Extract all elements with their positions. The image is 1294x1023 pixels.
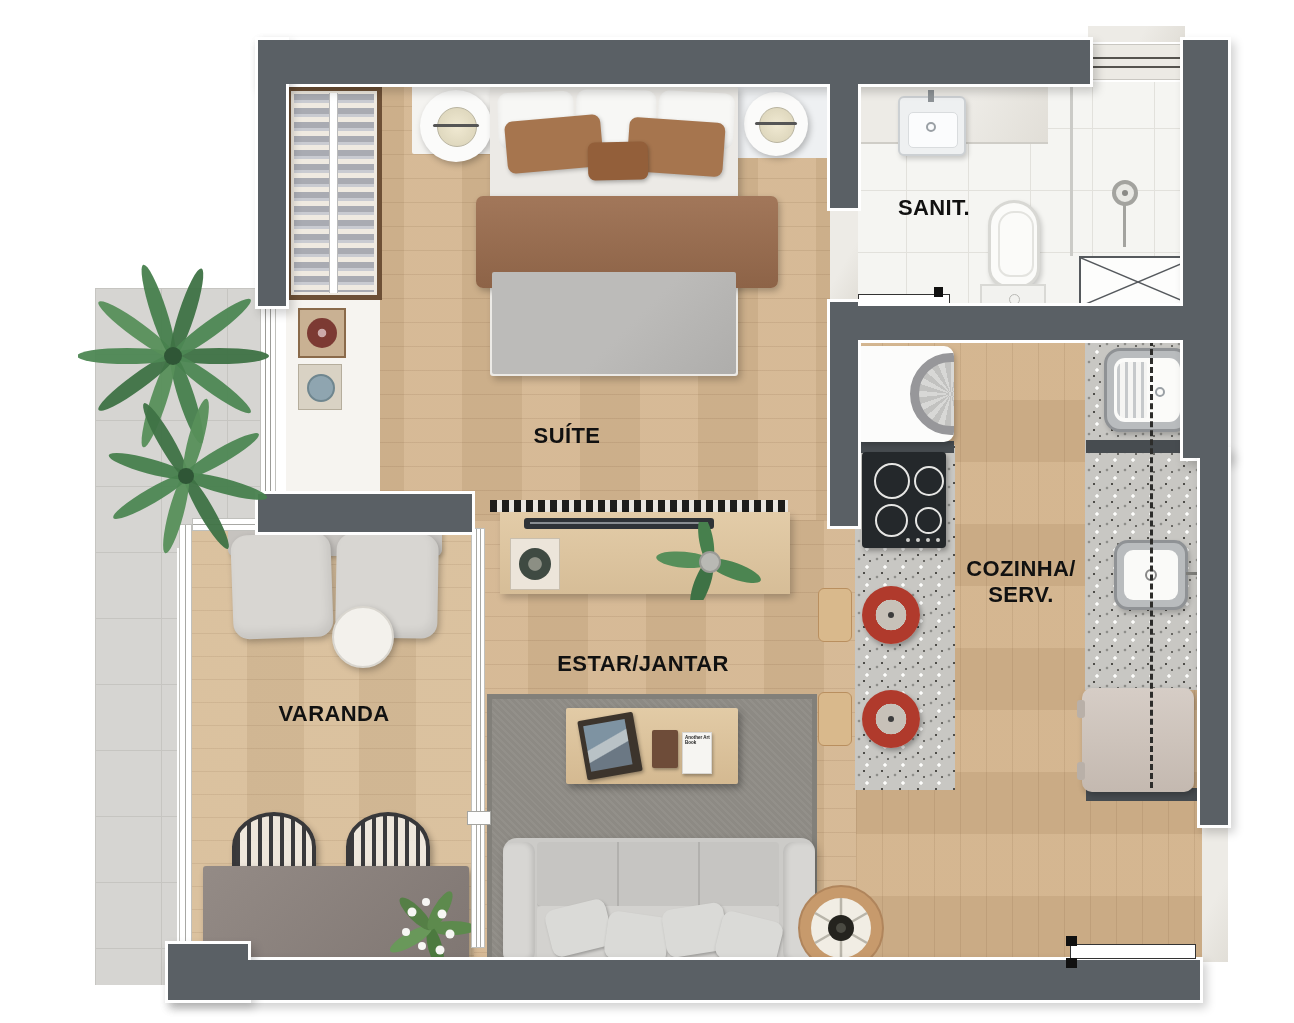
- wall-top: [258, 40, 1090, 84]
- room-label-suite: SUÍTE: [534, 423, 601, 449]
- bathroom-sink: [898, 96, 966, 156]
- glass-line: [480, 529, 481, 947]
- toilet-bowl: [988, 200, 1040, 288]
- wall-right-upper: [1183, 40, 1228, 458]
- wall-right-lower: [1200, 450, 1228, 825]
- room-label-cozinha-line2: SERV.: [966, 582, 1076, 608]
- lamp-left-icon: [420, 90, 492, 162]
- burner-icon: [915, 507, 942, 534]
- floor-plan: Another Art Book: [0, 0, 1294, 1023]
- room-label-estar: ESTAR/JANTAR: [557, 651, 728, 677]
- balcony-side-table: [332, 606, 394, 668]
- fridge-hinge: [1077, 762, 1085, 780]
- pot-icon: [862, 690, 920, 748]
- entrance-door-hinge: [1066, 958, 1077, 968]
- duct-x-icon: [1081, 258, 1195, 306]
- bathroom-door-hinge: [934, 287, 943, 297]
- counter-stool: [818, 692, 852, 746]
- cooktop-knob: [906, 538, 910, 542]
- glass-line: [185, 525, 186, 947]
- pot-icon: [862, 586, 920, 644]
- room-label-cozinha: COZINHA/ SERV.: [966, 556, 1076, 608]
- washer: [858, 346, 954, 442]
- art-book: Another Art Book: [682, 732, 712, 774]
- wall-suite-balcony: [258, 494, 472, 532]
- lamp-right-shade: [759, 107, 795, 143]
- decor-plate-icon: [307, 318, 337, 348]
- pot-lid-knob: [888, 612, 894, 618]
- room-label-varanda: VARANDA: [278, 701, 389, 727]
- room-label-cozinha-line1: COZINHA/: [966, 556, 1076, 582]
- shower-stem: [1123, 205, 1126, 247]
- dresser-decor-tile: [298, 364, 342, 410]
- sofa-seam: [617, 842, 619, 906]
- decor-speaker-icon: [519, 548, 551, 580]
- pot-lid-knob: [888, 716, 894, 722]
- entrance-door: [1070, 944, 1196, 959]
- lamp-left-shade: [437, 107, 477, 147]
- washer-drum-icon: [910, 353, 954, 435]
- entrance-door-hinge: [1066, 936, 1077, 946]
- sink-drain-icon: [926, 122, 936, 132]
- overhead-cabinet-dashed-line: [1150, 340, 1153, 788]
- bathroom-window: [1090, 44, 1184, 80]
- window-line: [1091, 57, 1183, 59]
- brown-book-icon: [652, 730, 678, 768]
- wall-bath-kitchen: [845, 306, 1200, 340]
- burner-icon: [874, 463, 910, 499]
- tv-panel-hatch: [490, 500, 788, 512]
- burner-icon: [914, 466, 944, 496]
- exterior-window-ledge: [1088, 26, 1185, 42]
- lamp-right-slit: [755, 122, 797, 125]
- counter-stool: [818, 588, 852, 642]
- sink-faucet-icon: [928, 90, 934, 102]
- magazine-icon: [583, 719, 632, 772]
- sofa-back: [537, 842, 779, 907]
- laundry-tank-sink: [1104, 348, 1190, 432]
- coffee-table-tray: [577, 712, 643, 781]
- balcony-sliding-door: [471, 528, 485, 948]
- decor-bowl-icon: [307, 374, 335, 402]
- palm-plant-icon: [78, 258, 273, 558]
- bathroom-door-threshold: [830, 208, 858, 304]
- dresser-decor-frame: [298, 308, 346, 358]
- cooktop-knob: [926, 538, 930, 542]
- bed-accent-pillow-small: [588, 141, 649, 180]
- wall-suite-bath: [830, 84, 858, 208]
- sliding-door-handle: [467, 811, 491, 825]
- wardrobe: [286, 86, 382, 300]
- wall-bottom: [168, 960, 1200, 1000]
- sofa-armrest: [503, 842, 535, 962]
- wardrobe-rail: [329, 93, 338, 293]
- balcony-railing-glass: [179, 524, 192, 948]
- sink-drain-icon: [1155, 387, 1165, 397]
- toilet-seat: [998, 211, 1034, 277]
- shower-head-center: [1122, 190, 1128, 196]
- shower-head-icon: [1112, 180, 1138, 206]
- cooktop: [862, 452, 946, 548]
- window-line: [1091, 66, 1183, 68]
- bed-duvet: [492, 272, 736, 374]
- fridge-hinge: [1077, 700, 1085, 718]
- console-decor-tray: [510, 538, 560, 590]
- shower-glass-divider: [1070, 84, 1073, 256]
- glass-line: [476, 529, 477, 947]
- washboard-icon: [1117, 362, 1147, 418]
- sofa: [503, 838, 815, 966]
- fridge: [1082, 688, 1194, 792]
- burner-icon: [875, 504, 908, 537]
- wall-bottom-left-corner: [168, 944, 248, 1000]
- cooktop-knob: [916, 538, 920, 542]
- console-plant-icon: [652, 522, 762, 600]
- cooktop-knob: [936, 538, 940, 542]
- exterior-ledge: [1198, 822, 1228, 962]
- lamp-right-icon: [744, 92, 808, 156]
- room-label-sanit: SANIT.: [898, 195, 970, 221]
- sofa-seam: [698, 842, 700, 906]
- lamp-left-slit: [433, 124, 479, 127]
